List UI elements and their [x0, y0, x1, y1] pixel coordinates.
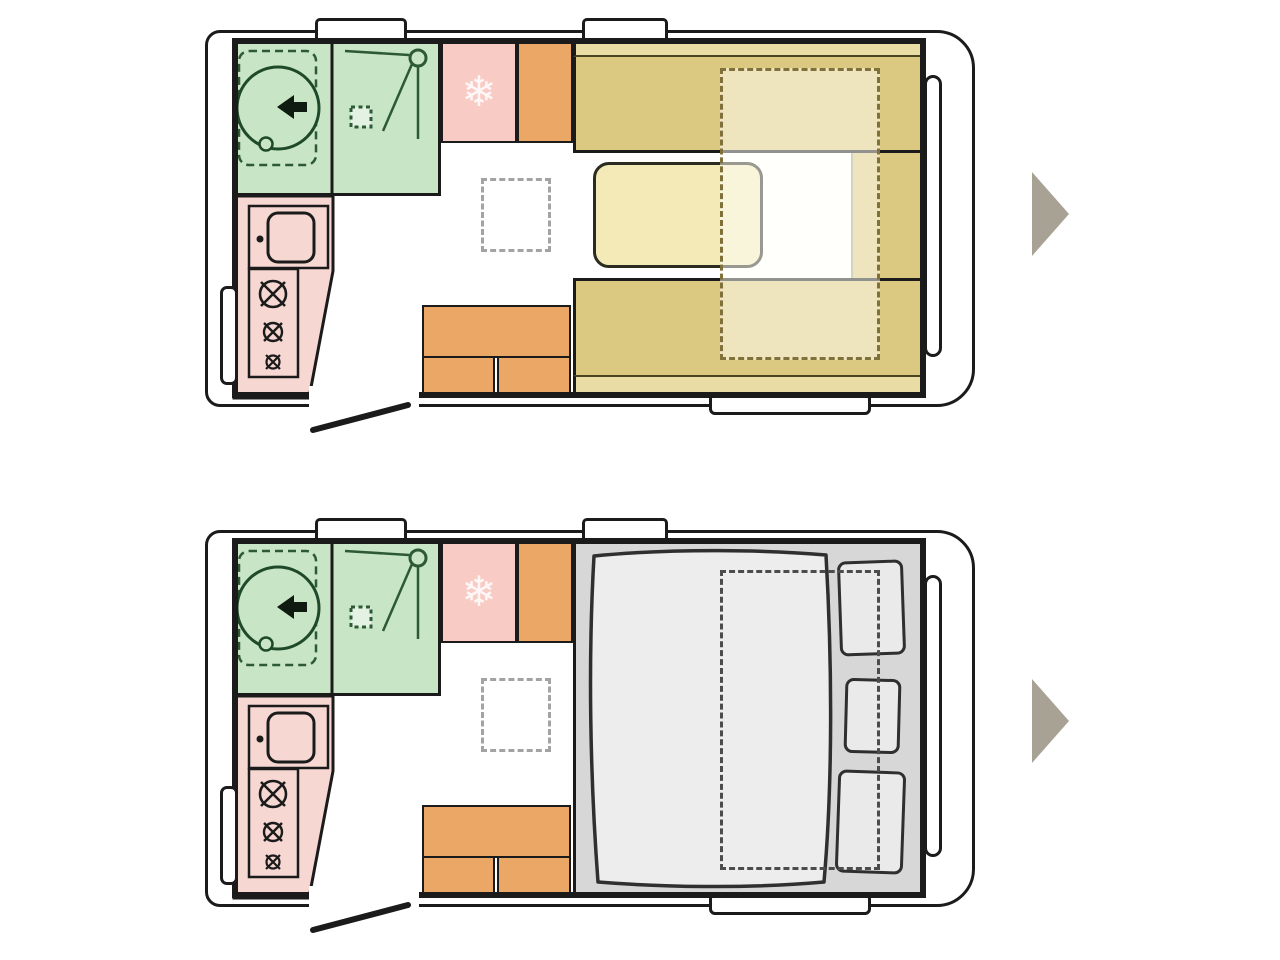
- front-window: [924, 75, 942, 357]
- floorplan-canvas: ❄: [0, 0, 1280, 960]
- door-opening: [309, 886, 419, 910]
- bed-area-outline: [720, 570, 880, 870]
- next-arrow-icon[interactable]: [1032, 679, 1069, 763]
- wardrobe-cabinet: [517, 541, 573, 643]
- fridge-unit: ❄: [441, 541, 517, 643]
- base-cabinet: [422, 805, 571, 858]
- snowflake-icon: ❄: [461, 571, 496, 613]
- floorplan-night-layout: ❄: [205, 530, 975, 907]
- side-window: [220, 786, 238, 885]
- bench-backrest: [573, 375, 920, 392]
- snowflake-icon: ❄: [461, 71, 496, 113]
- side-window: [220, 286, 238, 385]
- skylight-outline: [481, 678, 551, 752]
- base-cabinet: [422, 356, 495, 398]
- base-cabinet: [422, 856, 495, 898]
- floorplan-day-layout: ❄: [205, 30, 975, 407]
- skylight-outline: [481, 178, 551, 252]
- bathroom-area: [235, 41, 441, 196]
- front-window: [924, 575, 942, 857]
- bench-backrest: [573, 41, 920, 57]
- base-cabinet: [497, 356, 571, 398]
- door-opening: [309, 386, 419, 410]
- base-cabinet: [497, 856, 571, 898]
- entry-step: [709, 393, 871, 415]
- wardrobe-cabinet: [517, 41, 573, 143]
- base-cabinet: [422, 305, 571, 358]
- bed-conversion-outline: [720, 68, 880, 360]
- bathroom-area: [235, 541, 441, 696]
- fridge-unit: ❄: [441, 41, 517, 143]
- next-arrow-icon[interactable]: [1032, 172, 1069, 256]
- entry-step: [709, 893, 871, 915]
